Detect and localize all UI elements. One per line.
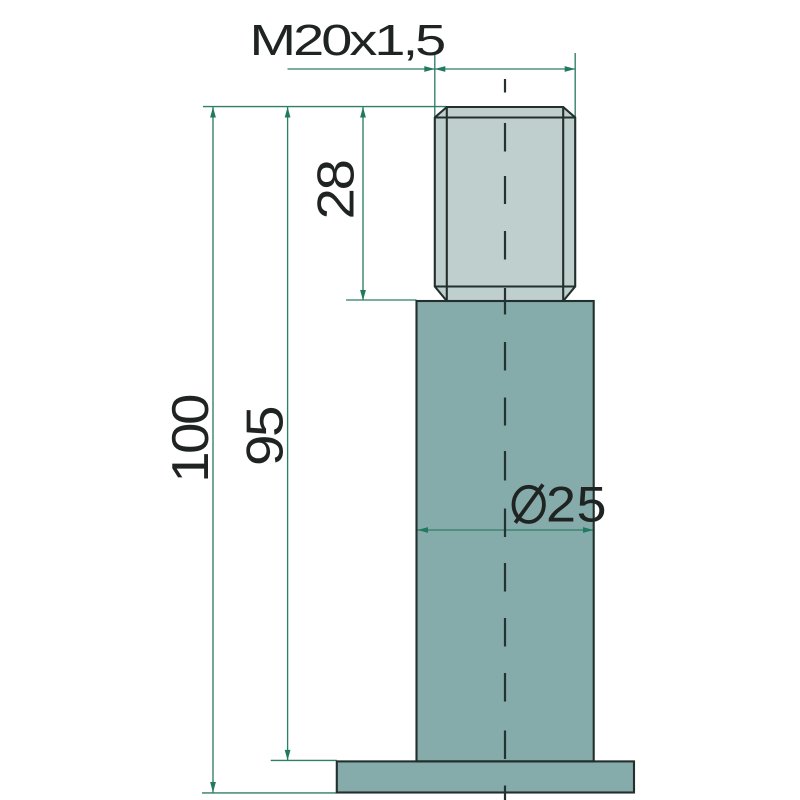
svg-text:M20x1,5: M20x1,5: [250, 15, 445, 65]
svg-text:100: 100: [161, 395, 219, 483]
svg-text:95: 95: [236, 408, 294, 466]
svg-text:28: 28: [307, 161, 365, 219]
svg-text:25: 25: [546, 477, 607, 533]
